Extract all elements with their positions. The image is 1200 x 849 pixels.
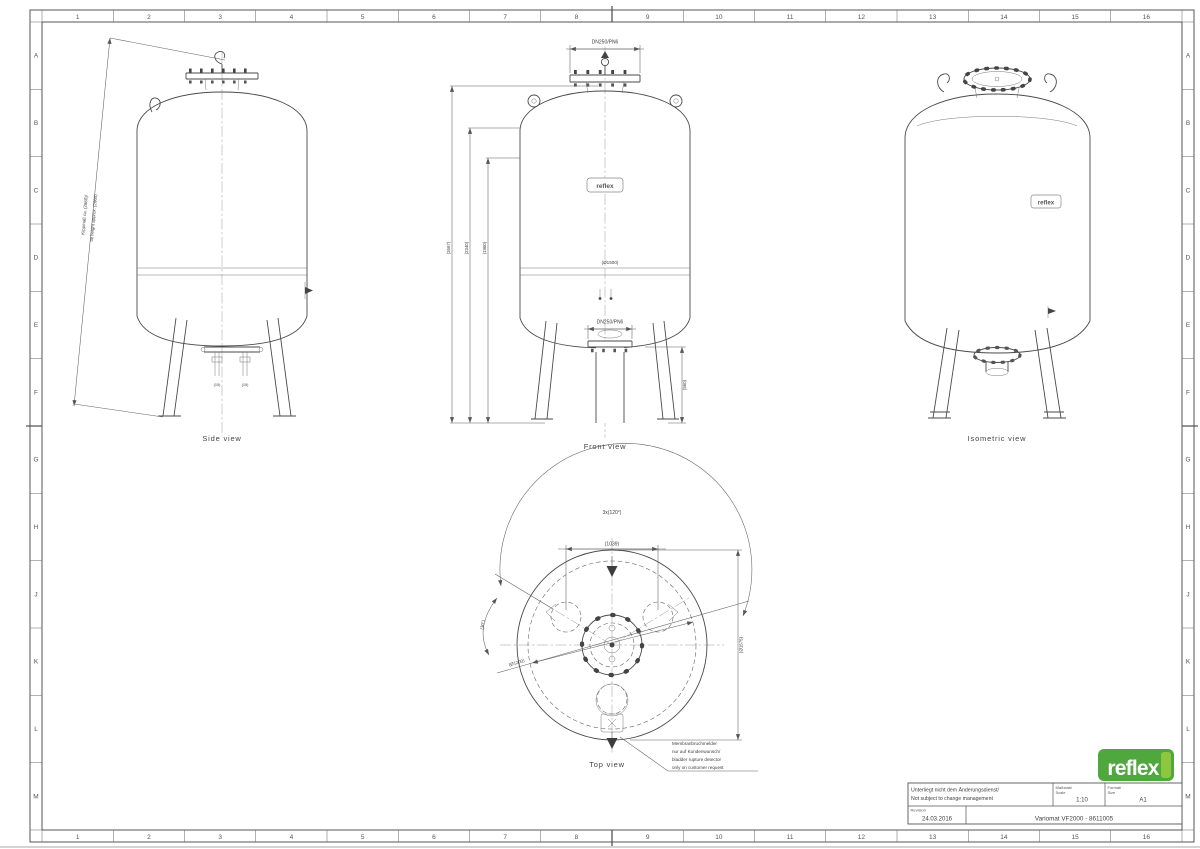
sticker-text: reflex	[1038, 200, 1055, 207]
grid-ref-label: 10	[715, 14, 723, 21]
grid-ref-label: E	[34, 322, 39, 329]
clearance-text: (560)	[682, 379, 687, 390]
grid-ref-label: D	[34, 255, 39, 262]
bottom-flange	[974, 348, 1020, 376]
grid-ref-label: G	[33, 457, 38, 464]
change-note-de: Unterliegt nicht dem Änderungsdienst/	[911, 787, 1000, 794]
title-block: Unterliegt nicht dem Änderungsdienst/ No…	[908, 783, 1182, 824]
reflex-logo: reflex	[1098, 749, 1174, 781]
bottom-flange-dim-text: DN250/PN6	[597, 320, 624, 326]
tilt-dimension-de: Kippmaß ca. (2860)/	[80, 194, 89, 235]
change-note-en: Not subject to change management	[911, 796, 993, 802]
note-line-2: nur auf Kundenwunsch/	[672, 749, 721, 754]
grid-ref-label: 5	[361, 14, 365, 21]
grid-ref-label: F	[1186, 389, 1190, 396]
top-view: 3x(120°) (30°) (1039) (Ø1200) (Ø1575) Me…	[479, 443, 758, 771]
grid-ref-label: 3	[218, 14, 222, 21]
legs	[158, 318, 296, 416]
grid-ref-label: 1	[76, 14, 80, 21]
height-shell-text: (1960)	[482, 241, 487, 254]
grid-ref-label: 7	[503, 834, 507, 841]
grid-ref-label: F	[34, 389, 38, 396]
height-to-flange-text: (2340)	[464, 241, 469, 254]
grid-ref-label: E	[1186, 322, 1191, 329]
grid-ref-label: 12	[858, 834, 866, 841]
grid-ref-label: 8	[575, 14, 579, 21]
reflex-sticker: reflex	[1031, 195, 1061, 208]
vent-valve-icon	[601, 51, 609, 75]
grid-ref-label: D	[1186, 255, 1191, 262]
grid-ref-label: 2	[147, 14, 151, 21]
bottom-flange-dimension: DN250/PN6	[584, 320, 636, 340]
grid-ref-label: J	[1186, 591, 1189, 598]
reflex-sticker: reflex	[587, 178, 623, 192]
tilt-dimension: Kippmaß ca. (2860)/ tilt height approx. …	[74, 38, 225, 417]
legs	[928, 328, 1066, 418]
dome-rim	[917, 116, 1077, 126]
ground-mark-flag-icon	[305, 287, 313, 294]
grid-ref-label: 1	[76, 834, 80, 841]
drawing-sheet: 1122334455667788991010111112121313141415…	[0, 0, 1200, 849]
height-dimensions: (2667) (2340) (1960)	[446, 86, 598, 423]
grid-ref-label: 13	[929, 834, 937, 841]
grid-ref-label: 13	[929, 14, 937, 21]
grid-ref-label: C	[1186, 187, 1191, 194]
grid-ref-label: 10	[715, 834, 723, 841]
grid-ref-label: 2	[147, 834, 151, 841]
grid-ref-label: 16	[1143, 14, 1151, 21]
grid-ref-label: A	[34, 53, 39, 60]
grid-ref-label: 15	[1072, 14, 1080, 21]
format-label-en: Size	[1108, 790, 1117, 795]
grid-ref-label: A	[1186, 53, 1191, 60]
bottom-flange	[201, 347, 263, 376]
grid-ref-label: 12	[858, 14, 866, 21]
grid-ref-label: 9	[646, 14, 650, 21]
grid-ref-label: 8	[575, 834, 579, 841]
grid-ref-label: 4	[290, 834, 294, 841]
top-view-label: Top view	[589, 760, 625, 769]
grid-ref-label: 6	[432, 14, 436, 21]
grid-ref-label: 11	[787, 14, 794, 21]
grid-ref-label: 14	[1000, 14, 1008, 21]
lifting-hook-icon	[1045, 74, 1057, 92]
lifting-lug-icon	[150, 98, 160, 112]
angle-dim-text: 3x(120°)	[603, 510, 622, 516]
grid-ref-label: L	[34, 726, 38, 733]
grid-ref-label: 16	[1143, 834, 1151, 841]
grid-ref-label: B	[1186, 120, 1190, 127]
grid-ref-label: B	[34, 120, 38, 127]
scale-value: 1:10	[1076, 798, 1088, 804]
grid-ref-label: M	[1185, 793, 1190, 800]
diameter-text: (Ø1500)	[602, 260, 619, 265]
scale-label-en: Scale	[1056, 790, 1067, 795]
lifting-hook-icon	[938, 74, 950, 92]
grid-ref-label: K	[1186, 659, 1191, 666]
grid-ref-label: K	[34, 659, 39, 666]
grid-ref-label: H	[1186, 524, 1191, 531]
drain-marks	[599, 289, 613, 300]
sticker-text: reflex	[596, 183, 614, 190]
clearance-dimension: (560)	[645, 347, 687, 423]
drawing-title: Variomat VF2000 - 8611005	[1035, 816, 1114, 823]
grid-ref-label: M	[33, 793, 38, 800]
height-total-text: (2667)	[446, 241, 451, 254]
side-view: (15) (15) Kippmaß ca. (2860)/ tilt heigh…	[74, 38, 313, 443]
side-view-label: Side view	[202, 434, 241, 443]
manhole-flange	[964, 68, 1030, 98]
note-line-4: only on customer request	[672, 765, 724, 770]
engineering-drawing: 1122334455667788991010111112121313141415…	[0, 0, 1200, 849]
membrane-note: Membranbruchmelder nur auf Kundenwunsch/…	[620, 737, 758, 771]
front-view: DN250/PN6 (2667) (2340) (1960) (Ø1500) r…	[446, 40, 690, 452]
tilt-dimension-en: tilt height approx. (2860)	[89, 194, 98, 242]
grid-ref-label: 3	[218, 834, 222, 841]
note-line-3: bladder rupture detector	[672, 757, 722, 762]
grid-ticks	[30, 10, 1194, 842]
grid-ref-label: H	[34, 524, 39, 531]
grid-ref-label: C	[34, 187, 39, 194]
isometric-view-label: Isometric view	[968, 434, 1027, 443]
grid-ref-label: 7	[503, 14, 507, 21]
pitch-circle-dimension: (Ø1200)	[497, 601, 749, 673]
note-line-1: Membranbruchmelder	[672, 741, 717, 746]
grid-ref-label: 11	[787, 834, 794, 841]
grid-reference-border: 1122334455667788991010111112121313141415…	[0, 6, 1200, 847]
top-flange-dim-text: DN250/PN6	[592, 40, 619, 46]
grid-ref-label: 15	[1072, 834, 1080, 841]
revision-date: 24.03.2016	[922, 817, 953, 823]
stud-dimension: (15)	[242, 383, 249, 387]
isometric-view: reflex Isometric view	[905, 68, 1090, 443]
feet-spacing-text: (1039)	[605, 542, 620, 548]
revision-label: Revision	[911, 808, 926, 813]
logo-text: reflex	[1107, 757, 1159, 780]
grid-ref-label: 4	[290, 14, 294, 21]
level-mark-flag-icon	[1048, 308, 1056, 314]
logo-accent	[1161, 752, 1171, 778]
grid-ref-label: 5	[361, 834, 365, 841]
format-value: A1	[1139, 798, 1147, 804]
grid-ref-label: J	[34, 591, 37, 598]
outer-diameter-text: (Ø1575)	[739, 636, 744, 653]
grid-ref-label: 6	[432, 834, 436, 841]
leg-angle-text: (30°)	[479, 619, 486, 630]
bottom-pipe	[588, 330, 632, 423]
grid-ref-label: L	[1186, 726, 1190, 733]
grid-ref-label: 14	[1000, 834, 1008, 841]
stud-dimension: (15)	[214, 383, 221, 387]
grid-ref-label: 9	[646, 834, 650, 841]
grid-ref-label: G	[1185, 457, 1190, 464]
outer-frame	[30, 10, 1194, 842]
